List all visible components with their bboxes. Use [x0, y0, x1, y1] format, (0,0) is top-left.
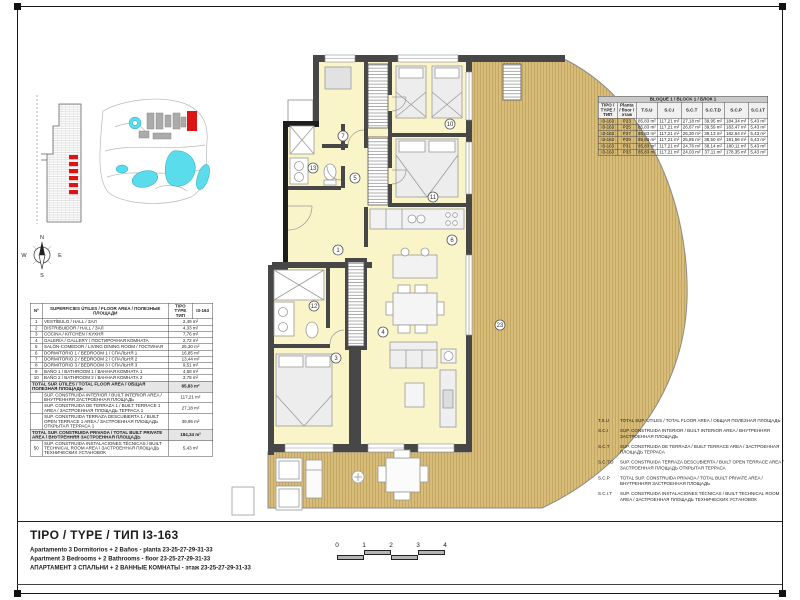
areas-table: Nº SUPERFICIES ÚTILES / FLOOR AREA / ПОЛ… [30, 303, 213, 456]
deck-side-box [232, 487, 254, 515]
room-number: 3 [331, 353, 341, 363]
areas-table-wrap: Nº SUPERFICIES ÚTILES / FLOOR AREA / ПОЛ… [30, 303, 213, 456]
scale-segments [337, 550, 449, 562]
row-no [30, 414, 42, 430]
areas-header-no: Nº [30, 303, 42, 319]
room-number: 1 [333, 245, 343, 255]
table-row: 9 BAÑO 1 / BATHROOM 1 / ВАННАЯ КОМНАТА 1… [30, 369, 213, 375]
row-value: 27,18 m² [168, 403, 213, 414]
subtitle-en: Apartment 3 Bedrooms + 2 Bathrooms - flo… [30, 554, 310, 563]
row-name: SALÓN-COMEDOR / LIVING DINING ROOM / ГОС… [42, 344, 168, 350]
legend-item: S.C.I.T SUP. CONSTRUIDA INSTALACIONES TÉ… [598, 491, 788, 502]
site-highlight-block [187, 111, 197, 131]
table-row: I3-163 P27 85,83 m² 117,21 m² 26,30 m² 3… [598, 131, 768, 137]
svg-text:13: 13 [310, 166, 317, 172]
legend-wrap: T.S.U TOTAL SUP. ÚTILES / TOTAL FLOOR AR… [598, 418, 788, 507]
block-table-header: TIPO / TYPE / ТИП Planta / floor / этаж … [598, 102, 768, 118]
compass-n: N [40, 235, 44, 241]
corner-mark [779, 3, 786, 10]
table-row: 4 GALERÍA / GALLERY / ПОСТИРОЧНАЯ КОМНАТ… [30, 338, 213, 344]
legend-text: SUP. CONSTRUIDA TERRAZA DESCUBIERTA / BU… [620, 460, 788, 471]
compass-e: E [58, 253, 62, 259]
legend-item: S.C.I SUP. CONSTRUIDA INTERIOR / BUILT I… [598, 428, 788, 439]
table-row: SUP. CONSTRUIDA TERRAZA DESCUBIERTA 1 / … [30, 414, 213, 430]
row-value: 5,43 m² [168, 441, 213, 457]
table-row: SUP. CONSTRUIDA DE TERRAZA 1 / BUILT TER… [30, 403, 213, 414]
row-name: SUP. CONSTRUIDA INSTALACIONES TÉCNICAS /… [42, 441, 168, 457]
table-row: I3-163 P23 85,83 m² 117,21 m² 27,18 m² 3… [598, 118, 768, 124]
block-table: BLOQUE 1 / BLOCK 1 / БЛОК 1 TIPO / TYPE … [598, 96, 768, 156]
subtitle-ru: АПАРТАМЕНТ 3 СПАЛЬНИ + 2 ВАННЫЕ КОМНАТЫ … [30, 563, 310, 572]
block-table-rows: I3-163 P23 85,83 m² 117,21 m² 27,18 m² 3… [598, 118, 768, 155]
core-room [288, 100, 313, 122]
table-row: I3-163 P31 85,83 m² 117,21 m² 24,76 m² 3… [598, 143, 768, 149]
total-utiles-row: TOTAL SUP. ÚTILES / TOTAL FLOOR AREA / О… [30, 381, 213, 392]
row-name: SUP. CONSTRUIDA INTERIOR / BUILT INTERIO… [42, 392, 168, 403]
row-value: 117,21 m² [168, 392, 213, 403]
table-row: I3-163 P25 85,83 m² 117,21 m² 26,67 m² 3… [598, 124, 768, 130]
total-private-value: 184,34 m² [168, 430, 213, 441]
room-number: 4 [378, 327, 388, 337]
table-row: I3-163 P29 85,83 m² 117,21 m² 25,85 m² 3… [598, 137, 768, 143]
ac-unit [503, 64, 521, 100]
total-private-label: TOTAL SUP. CONSTRUIDA PRIVADA / TOTAL BU… [30, 430, 168, 441]
legend-item: T.S.U TOTAL SUP. ÚTILES / TOTAL FLOOR AR… [598, 418, 788, 424]
table-row: I3-163 P33 85,83 m² 117,21 m² 24,03 m² 3… [598, 149, 768, 155]
block-table-wrap: BLOQUE 1 / BLOCK 1 / БЛОК 1 TIPO / TYPE … [598, 96, 768, 156]
legend-item: S.C.T.D SUP. CONSTRUIDA TERRAZA DESCUBIE… [598, 460, 788, 471]
row-name: SUP. CONSTRUIDA DE TERRAZA 1 / BUILT TER… [42, 403, 168, 414]
legend-abbr: S.C.P [598, 475, 620, 486]
scale-bar: 0 1 2 3 4 [337, 542, 449, 562]
legend-text: TOTAL SUP. CONSTRUIDA PRIVADA / TOTAL BU… [620, 475, 788, 486]
room-number: 7 [338, 131, 348, 141]
table-row: 8 DORMITORIO 3 / BEDROOM 3 / СПАЛЬНЯ 3 9… [30, 362, 213, 368]
row-no: 50 [30, 441, 42, 457]
room-number: 11 [428, 192, 438, 202]
areas-header-type: TIPO TYPE ТИП [168, 303, 192, 319]
installations-shaft [348, 262, 364, 346]
compass-w: W [21, 253, 27, 259]
subtitle-es: Apartamento 3 Dormitorios + 2 Baños - pl… [30, 545, 310, 554]
svg-text:12: 12 [311, 304, 318, 310]
footer-divider-2 [17, 584, 782, 585]
table-row: SUP. CONSTRUIDA INTERIOR / BUILT INTERIO… [30, 392, 213, 403]
total-private-row: TOTAL SUP. CONSTRUIDA PRIVADA / TOTAL BU… [30, 430, 213, 441]
areas-header-name: SUPERFICIES ÚTILES / FLOOR AREA / ПОЛЕЗН… [42, 303, 168, 319]
legend-abbr: S.C.T [598, 444, 620, 455]
row-value: 39,95 m² [168, 414, 213, 430]
page-title: TIPO / TYPE / ТИП I3-163 [30, 528, 179, 542]
corner-mark [14, 590, 21, 597]
table-row: 10 BAÑO 2 / BATHROOM 2 / ВАННАЯ КОМНАТА … [30, 375, 213, 381]
legend-text: SUP. CONSTRUIDA INTERIOR / BUILT INTERIO… [620, 428, 788, 439]
svg-text:11: 11 [430, 195, 437, 201]
legend-abbr: S.C.I.T [598, 491, 620, 502]
table-row: 6 DORMITORIO 1 / BEDROOM 1 / СПАЛЬНЯ 1 1… [30, 350, 213, 356]
legend-abbr: S.C.I [598, 428, 620, 439]
legend-abbr: S.C.T.D [598, 460, 620, 471]
corner-mark [14, 3, 21, 10]
tech-row: 50 SUP. CONSTRUIDA INSTALACIONES TÉCNICA… [30, 441, 213, 457]
room-number: 6 [447, 235, 457, 245]
subtitle-wrap: Apartamento 3 Dormitorios + 2 Baños - pl… [30, 545, 310, 572]
room-number: 23 [495, 320, 505, 330]
room-number: 10 [445, 119, 455, 129]
legend-item: S.C.P TOTAL SUP. CONSTRUIDA PRIVADA / TO… [598, 475, 788, 486]
scale-numbers: 0 1 2 3 4 [337, 542, 449, 550]
compass-s: S [40, 273, 44, 278]
room-number: 13 [308, 163, 318, 173]
legend-item: S.C.T SUP. CONSTRUIDA DE TERRAZA / BUILT… [598, 444, 788, 455]
built-rows: SUP. CONSTRUIDA INTERIOR / BUILT INTERIO… [30, 392, 213, 430]
legend-text: TOTAL SUP. ÚTILES / TOTAL FLOOR AREA / О… [620, 418, 788, 424]
total-utiles-value: 85,83 m² [168, 381, 213, 392]
row-no [30, 392, 42, 403]
corner-mark [779, 590, 786, 597]
svg-text:23: 23 [497, 323, 504, 329]
areas-header-code: I3-163 [192, 303, 212, 319]
room-number: 12 [309, 301, 319, 311]
site-pools [116, 117, 212, 191]
areas-rows: 1 VESTÍBULO / HALL / ЗАЛ 2,49 m² 2 DISTR… [30, 319, 213, 381]
table-row: 7 DORMITORIO 2 / BEDROOM 2 / СПАЛЬНЯ 2 1… [30, 356, 213, 362]
legend-text: SUP. CONSTRUIDA DE TERRAZA / BUILT TERRA… [620, 444, 788, 455]
site-plan [95, 93, 215, 207]
tower-elevation [33, 92, 93, 227]
legend: T.S.U TOTAL SUP. ÚTILES / TOTAL FLOOR AR… [598, 418, 788, 502]
room-number: 5 [350, 173, 360, 183]
total-utiles-label: TOTAL SUP. ÚTILES / TOTAL FLOOR AREA / О… [30, 381, 168, 392]
table-row: 5 SALÓN-COMEDOR / LIVING DINING ROOM / Г… [30, 344, 213, 350]
row-name: SUP. CONSTRUIDA TERRAZA DESCUBIERTA 1 / … [42, 414, 168, 430]
plan-sheet: N S W E [0, 0, 800, 600]
row-no [30, 403, 42, 414]
site-buildings [139, 113, 186, 139]
legend-abbr: T.S.U [598, 418, 620, 424]
svg-text:10: 10 [447, 122, 454, 128]
compass-rose-icon: N S W E [20, 230, 64, 278]
legend-text: SUP. CONSTRUIDA INSTALACIONES TÉCNICAS /… [620, 491, 788, 502]
